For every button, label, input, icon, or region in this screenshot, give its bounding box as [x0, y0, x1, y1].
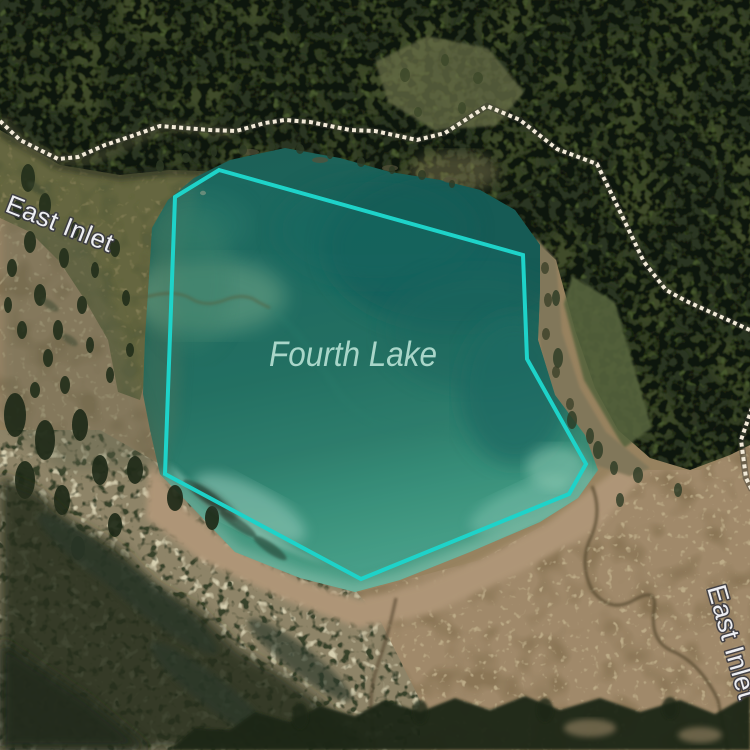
- svg-text:Fourth Lake: Fourth Lake: [269, 336, 437, 375]
